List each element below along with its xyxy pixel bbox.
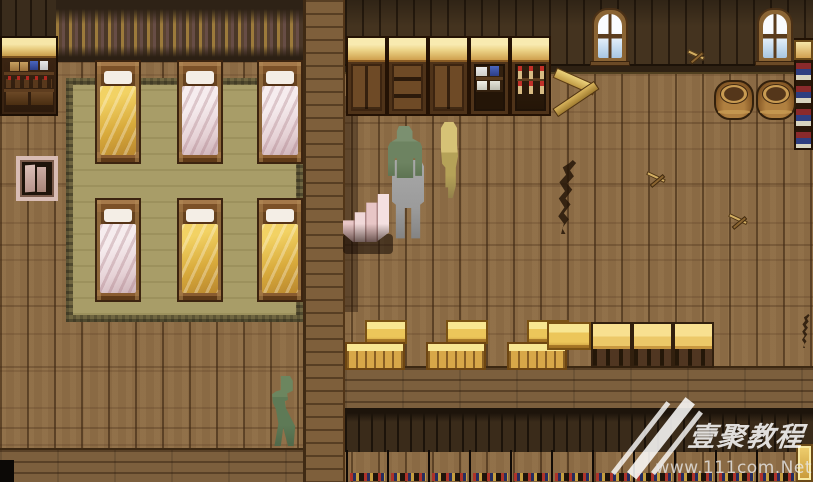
corner-dark	[0, 460, 14, 482]
bed-6[interactable]	[257, 198, 303, 302]
table-2[interactable]	[632, 322, 673, 368]
barrel-2[interactable]	[756, 80, 796, 120]
npc-hooded[interactable]	[388, 126, 422, 178]
cabinet-drawers[interactable]	[387, 36, 428, 116]
floor-debris-2	[725, 206, 753, 234]
cabinet-dishes[interactable]	[469, 36, 510, 116]
floor-crack-2	[801, 314, 813, 348]
crate-single[interactable]	[547, 322, 591, 350]
bed-2[interactable]	[177, 60, 223, 164]
bed-4[interactable]	[95, 198, 141, 302]
cabinet-doors-1[interactable]	[346, 36, 387, 116]
column-shadow	[345, 96, 358, 312]
dividing-wall-column	[303, 0, 345, 482]
cabinet-bottles[interactable]	[510, 36, 551, 116]
floor-debris-1	[643, 164, 671, 192]
table-3[interactable]	[673, 322, 714, 368]
table-1[interactable]	[591, 322, 632, 368]
bookshelf-right[interactable]	[794, 38, 813, 150]
window-1	[592, 8, 628, 64]
crate-stack-2[interactable]	[426, 320, 490, 370]
counter-9[interactable]	[674, 450, 715, 482]
firewood-pile[interactable]	[551, 66, 603, 124]
npc-slim[interactable]	[440, 122, 458, 198]
floor-hatch[interactable]	[16, 156, 58, 201]
corner-shelf[interactable]	[796, 444, 813, 482]
counter-5[interactable]	[510, 450, 551, 482]
counter-1[interactable]	[346, 450, 387, 482]
counter-6[interactable]	[551, 450, 592, 482]
npc-walker[interactable]	[264, 376, 304, 446]
counter-10[interactable]	[715, 450, 756, 482]
bed-3[interactable]	[257, 60, 303, 164]
counter-7[interactable]	[592, 450, 633, 482]
counter-8[interactable]	[633, 450, 674, 482]
cabinet-doors-2[interactable]	[428, 36, 469, 116]
bed-5[interactable]	[177, 198, 223, 302]
counter-4[interactable]	[469, 450, 510, 482]
potion-shelf[interactable]	[0, 36, 58, 116]
lower-back-wall	[345, 408, 813, 452]
bedroom-wall-left	[0, 0, 58, 40]
bedroom-tapestry-wall	[56, 0, 303, 62]
counter-2[interactable]	[387, 450, 428, 482]
crate-stack-1[interactable]	[345, 320, 409, 370]
wall-debris	[684, 44, 710, 66]
game-scene	[0, 0, 813, 482]
ledge-band	[345, 366, 813, 410]
window-2	[757, 8, 793, 64]
bed-1[interactable]	[95, 60, 141, 164]
counter-3[interactable]	[428, 450, 469, 482]
floor-crack-1	[556, 160, 584, 234]
barrel-1[interactable]	[714, 80, 754, 120]
counter-11[interactable]	[756, 450, 797, 482]
bottom-left-wallband	[0, 448, 303, 482]
game-viewport[interactable]: 壹聚教程 www.111com.Net	[0, 0, 813, 482]
